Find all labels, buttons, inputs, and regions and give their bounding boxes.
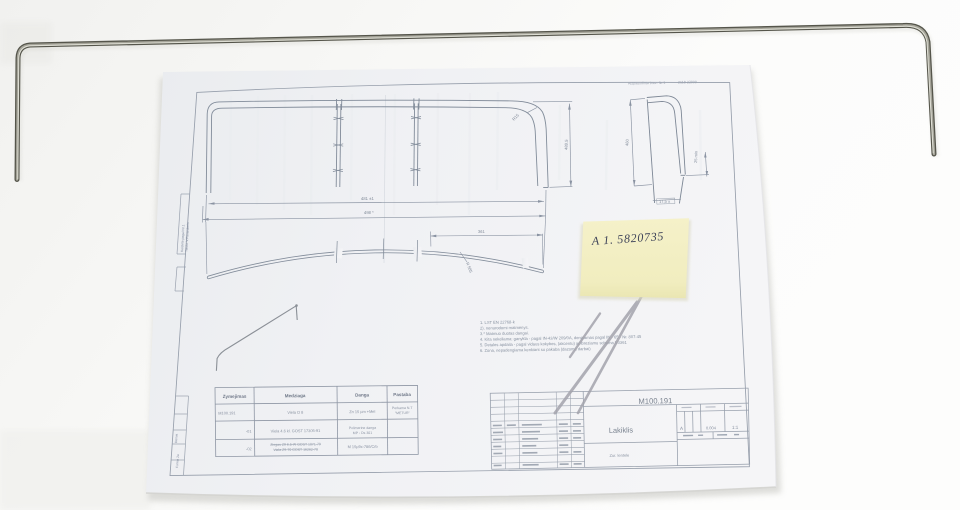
svg-text:Atspausdinta brez. Nr.1: Atspausdinta brez. Nr.1 <box>628 81 665 86</box>
svg-text:Viela 4.6 kl. GOST 17305-91: Viela 4.6 kl. GOST 17305-91 <box>271 428 321 434</box>
svg-text:Lakiklis: Lakiklis <box>609 425 634 434</box>
svg-text:Zymejimas: Zymejimas <box>223 394 247 399</box>
svg-text:"METUR": "METUR" <box>395 411 411 415</box>
svg-text:-02: -02 <box>246 446 252 451</box>
svg-text:481 ±1: 481 ±1 <box>361 196 374 201</box>
svg-text:Deriva: Deriva <box>174 433 179 443</box>
svg-text:Perkama N.T: Perkama N.T <box>392 406 414 410</box>
svg-text:Danga: Danga <box>355 392 370 397</box>
svg-text:498 *: 498 * <box>364 210 374 215</box>
svg-text:-01: -01 <box>246 429 252 434</box>
svg-text:Polimerine danga: Polimerine danga <box>349 426 376 430</box>
svg-text:Pastaba: Pastaba <box>393 392 411 397</box>
svg-text:Medziaga: Medziaga <box>285 393 306 398</box>
svg-text:17,5 ±: 17,5 ± <box>659 199 671 204</box>
svg-text:0.004: 0.004 <box>706 425 717 430</box>
svg-text:489.5: 489.5 <box>564 139 569 150</box>
svg-text:Viela Z9-70 GOST 16262-70: Viela Z9-70 GOST 16262-70 <box>273 447 318 451</box>
svg-text:25 min: 25 min <box>693 151 698 163</box>
svg-text:M100.191: M100.191 <box>638 396 672 406</box>
svg-text:480: 480 <box>624 138 629 146</box>
svg-text:361: 361 <box>478 229 486 234</box>
svg-text:Zn 15 µm +Mel: Zn 15 µm +Mel <box>349 409 375 414</box>
svg-text:2118-22090: 2118-22090 <box>678 80 697 84</box>
svg-text:Viela O 8: Viela O 8 <box>287 410 303 415</box>
svg-text:Ziogas Z9 6.5-W GOST 1071-79: Ziogas Z9 6.5-W GOST 1071-79 <box>270 442 321 447</box>
svg-text:1:1: 1:1 <box>732 425 739 430</box>
svg-text:MP - Ds 301: MP - Ds 301 <box>353 431 372 435</box>
svg-text:Zur. lentele: Zur. lentele <box>609 453 630 458</box>
svg-text:M 15µ9x-786/Crb: M 15µ9x-786/Crb <box>348 444 378 449</box>
svg-text:M100.191: M100.191 <box>218 410 235 415</box>
